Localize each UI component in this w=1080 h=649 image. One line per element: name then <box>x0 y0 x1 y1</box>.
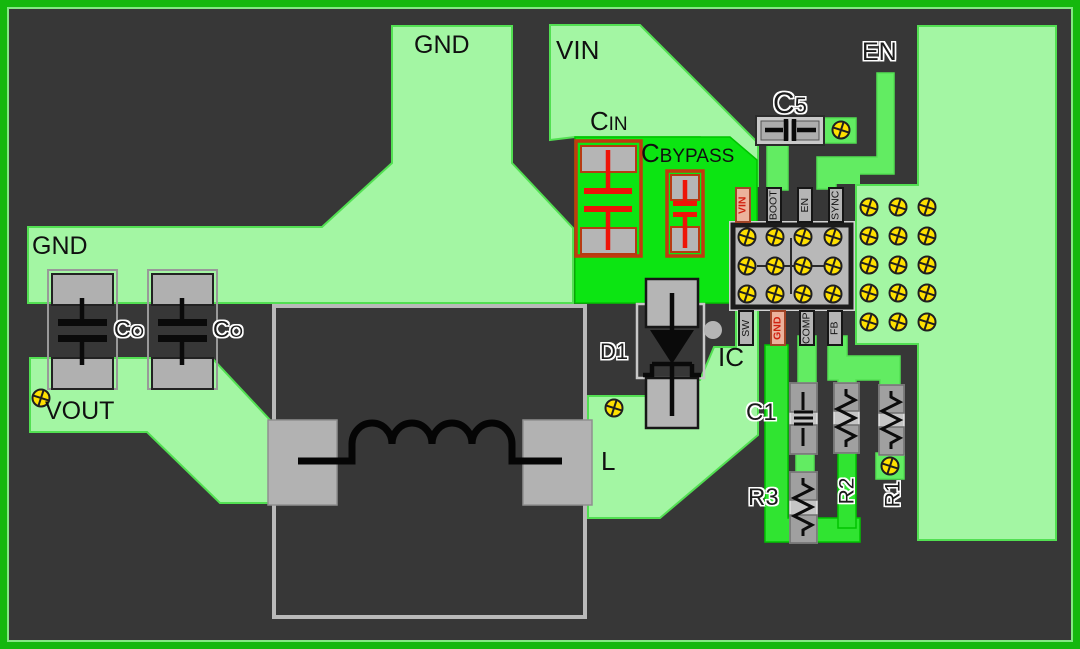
pcb-artwork <box>0 0 1080 649</box>
ic-pin-sync: SYNC <box>828 187 844 223</box>
ic-pin-en: EN <box>797 187 813 223</box>
label-en: EN <box>862 40 897 65</box>
ic-pin-fb-label: FB <box>830 321 841 334</box>
r1-pad-top <box>879 385 904 413</box>
label-gnd-plane: GND <box>32 234 88 259</box>
ic-pin-comp-label: COMP <box>802 312 813 344</box>
capacitor-co-2 <box>148 270 217 389</box>
r2-pad-bottom <box>834 425 859 453</box>
label-cin: CIN <box>590 110 628 136</box>
ic-pin-gnd: GND <box>770 310 786 346</box>
ic-pin-gnd-label: GND <box>773 316 784 339</box>
ic-pin-boot: BOOT <box>766 187 782 223</box>
capacitor-co-1 <box>48 270 117 389</box>
copper-gnd-plane <box>28 26 573 303</box>
ic-pin-sw: SW <box>738 310 754 346</box>
r3-pad-top <box>790 472 817 500</box>
diode-triangle-icon <box>650 330 694 364</box>
r2-pad-top <box>834 383 859 411</box>
ic-package <box>729 221 855 311</box>
label-vout: VOUT <box>45 399 114 424</box>
resistor-r2 <box>834 383 859 453</box>
label-inductor: L <box>601 448 615 474</box>
ic-pin-fb: FB <box>827 310 843 346</box>
label-gnd-top: GND <box>414 33 470 58</box>
ic-pin-vin-label: VIN <box>738 196 749 214</box>
ic-pin-sw-label: SW <box>741 320 752 337</box>
label-r1: R1 <box>883 481 904 508</box>
pcb-board: VIN BOOT EN SYNC SW GND COMP FB GND GND … <box>0 0 1080 649</box>
label-co-1: CO <box>114 318 144 341</box>
label-vin-plane: VIN <box>556 37 599 63</box>
label-ic: IC <box>718 344 744 370</box>
inductor-l <box>268 306 592 617</box>
r1-pad-bottom <box>879 427 904 455</box>
capacitor-c5 <box>756 116 824 145</box>
copper-en-trace-joint <box>834 168 860 184</box>
ic-pin-sync-label: SYNC <box>831 190 842 219</box>
pin1-dot <box>704 321 722 339</box>
label-c5: C5 <box>773 89 807 119</box>
label-c1: C1 <box>746 401 777 425</box>
resistor-r3 <box>790 472 817 543</box>
label-co-2: CO <box>213 318 243 341</box>
ic-pin-comp: COMP <box>799 310 815 346</box>
label-r3: R3 <box>748 486 779 510</box>
label-r2: R2 <box>837 478 858 505</box>
ic-pin-en-label: EN <box>800 198 811 213</box>
ic-pin-vin: VIN <box>735 187 751 223</box>
label-d1: D1 <box>600 341 628 363</box>
resistor-r1 <box>879 385 904 455</box>
capacitor-c1 <box>790 383 817 454</box>
label-cbypass: CBYPASS <box>641 142 734 168</box>
copper-boot-trace <box>767 140 788 190</box>
ic-pin-boot-label: BOOT <box>769 190 780 220</box>
